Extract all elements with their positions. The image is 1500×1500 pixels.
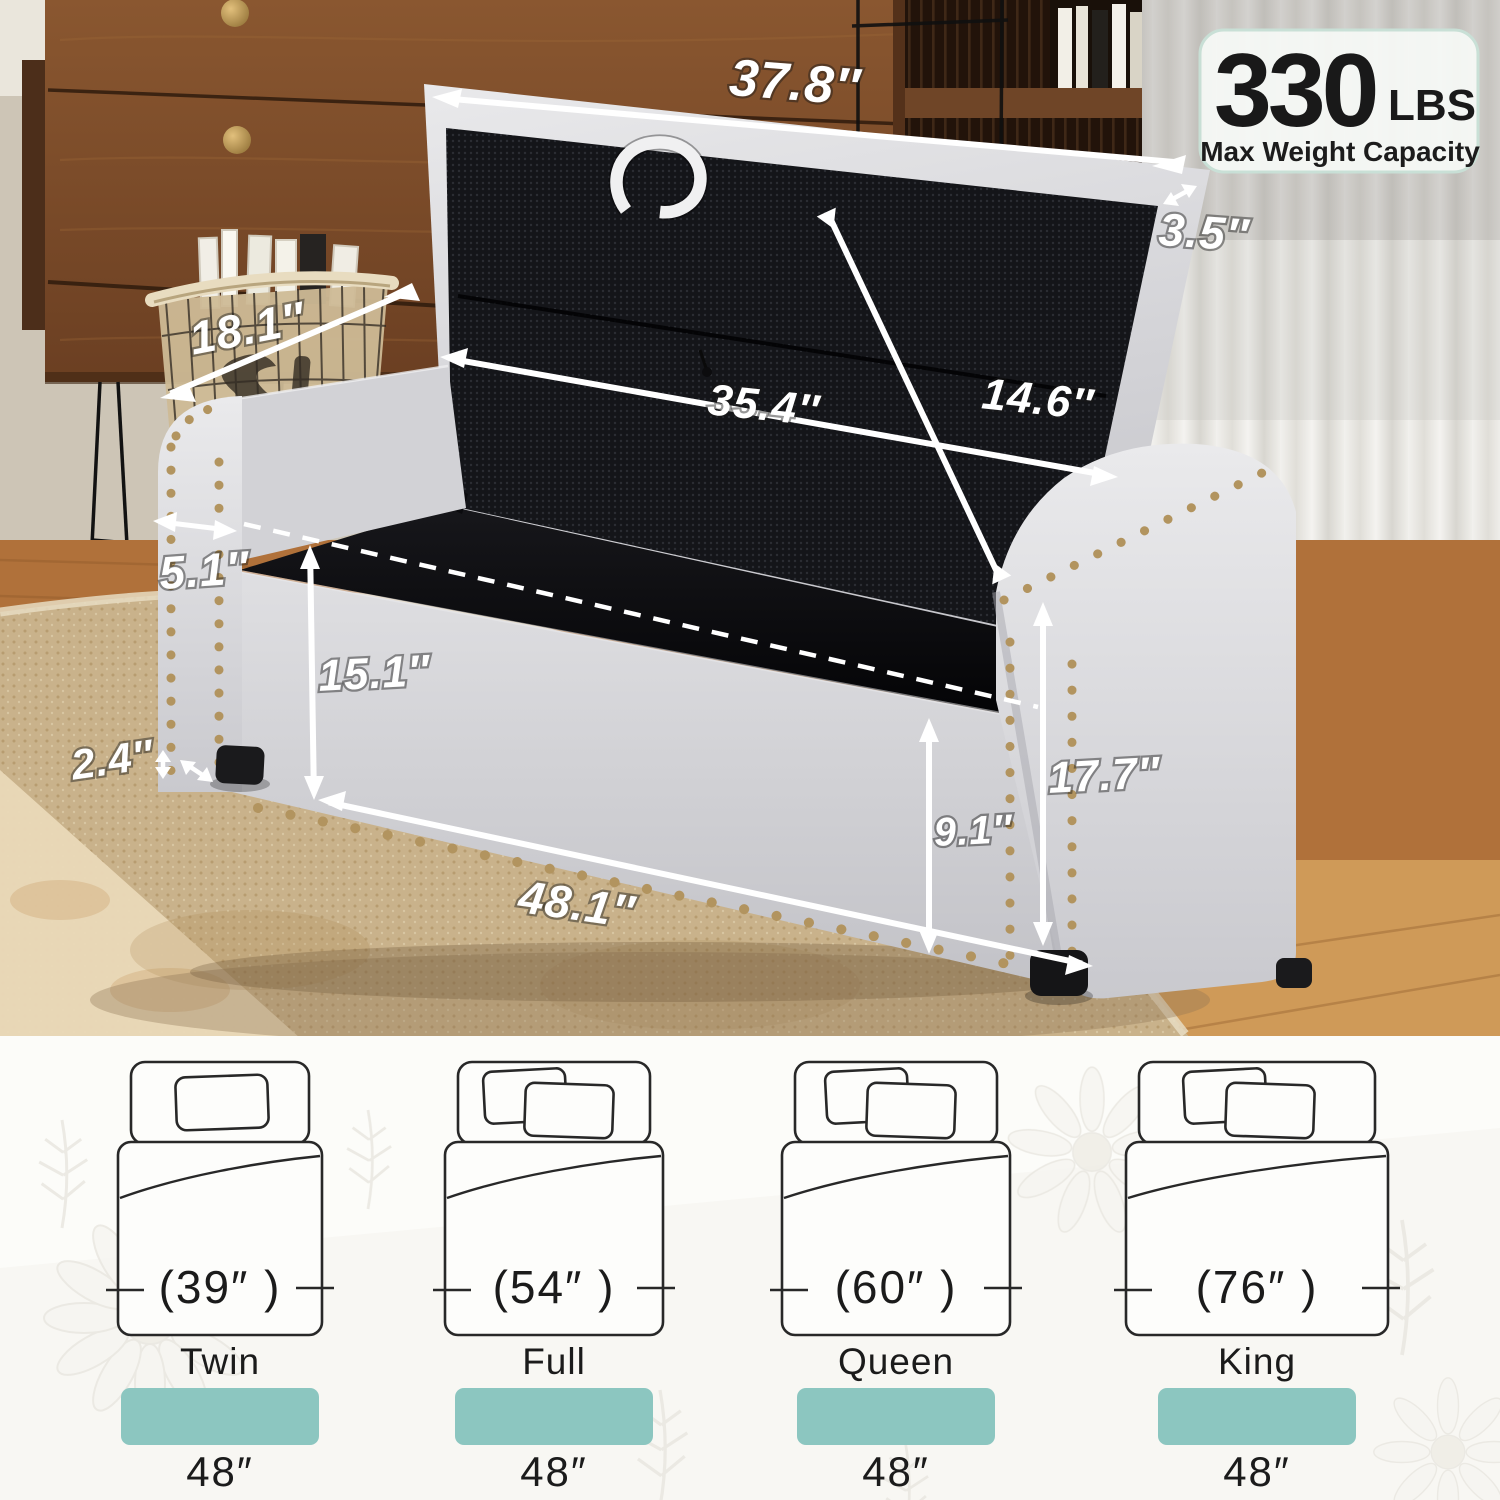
bed-width-label: (54″ ) [493, 1261, 616, 1313]
product-infographic: 37.8″ 3.5″ 18.1″ 35.4″ 14.6″ 5.1″ 15.1″ … [0, 0, 1500, 1500]
bed-card-full: (54″ ) Full 48″ [433, 1062, 675, 1495]
ottoman-width-label: 48″ [862, 1448, 930, 1495]
dim-arm-width-label: 5.1″ [157, 541, 251, 599]
badge-caption: Max Weight Capacity [1200, 136, 1480, 167]
ottoman-width-bar [121, 1388, 319, 1445]
badge-value: 330 [1214, 33, 1376, 149]
bed-card-queen: (60″ ) Queen 48″ [770, 1062, 1022, 1495]
dim-storage-depth-label: 9.1″ [933, 807, 1015, 855]
ottoman-width-bar [797, 1388, 995, 1445]
bed-comparison-section: (39″ ) Twin 48″ (54″ ) Full 48″ (6 [0, 1036, 1500, 1500]
ottoman-width-label: 48″ [1223, 1448, 1291, 1495]
dim-lid-thickness-label: 3.5″ [1157, 203, 1251, 261]
bed-size-label: Full [522, 1341, 586, 1382]
weight-capacity-badge: 330 LBS Max Weight Capacity [1200, 30, 1480, 172]
dim-interior-height-label: 15.1″ [317, 646, 432, 701]
ottoman-width-label: 48″ [186, 1448, 254, 1495]
pillow [1225, 1082, 1315, 1138]
ottoman-width-bar [455, 1388, 653, 1445]
bed-size-label: Twin [180, 1341, 260, 1382]
dim-lid-width-label: 37.8″ [727, 49, 863, 117]
bed-size-label: King [1218, 1341, 1296, 1382]
pillow [175, 1074, 269, 1130]
drawer-knob [221, 0, 249, 27]
dim-overall-height-label: 17.7″ [1047, 748, 1162, 803]
bed-width-label: (76″ ) [1196, 1261, 1319, 1313]
pillow [524, 1082, 614, 1138]
pillow [866, 1082, 956, 1138]
badge-unit: LBS [1388, 81, 1476, 130]
drawer-knob [223, 126, 251, 154]
ottoman-width-bar [1158, 1388, 1356, 1445]
bed-size-label: Queen [838, 1341, 954, 1382]
bed-width-label: (39″ ) [159, 1261, 282, 1313]
ottoman-width-label: 48″ [520, 1448, 588, 1495]
bed-width-label: (60″ ) [835, 1261, 958, 1313]
bed-card-twin: (39″ ) Twin 48″ [106, 1062, 334, 1495]
